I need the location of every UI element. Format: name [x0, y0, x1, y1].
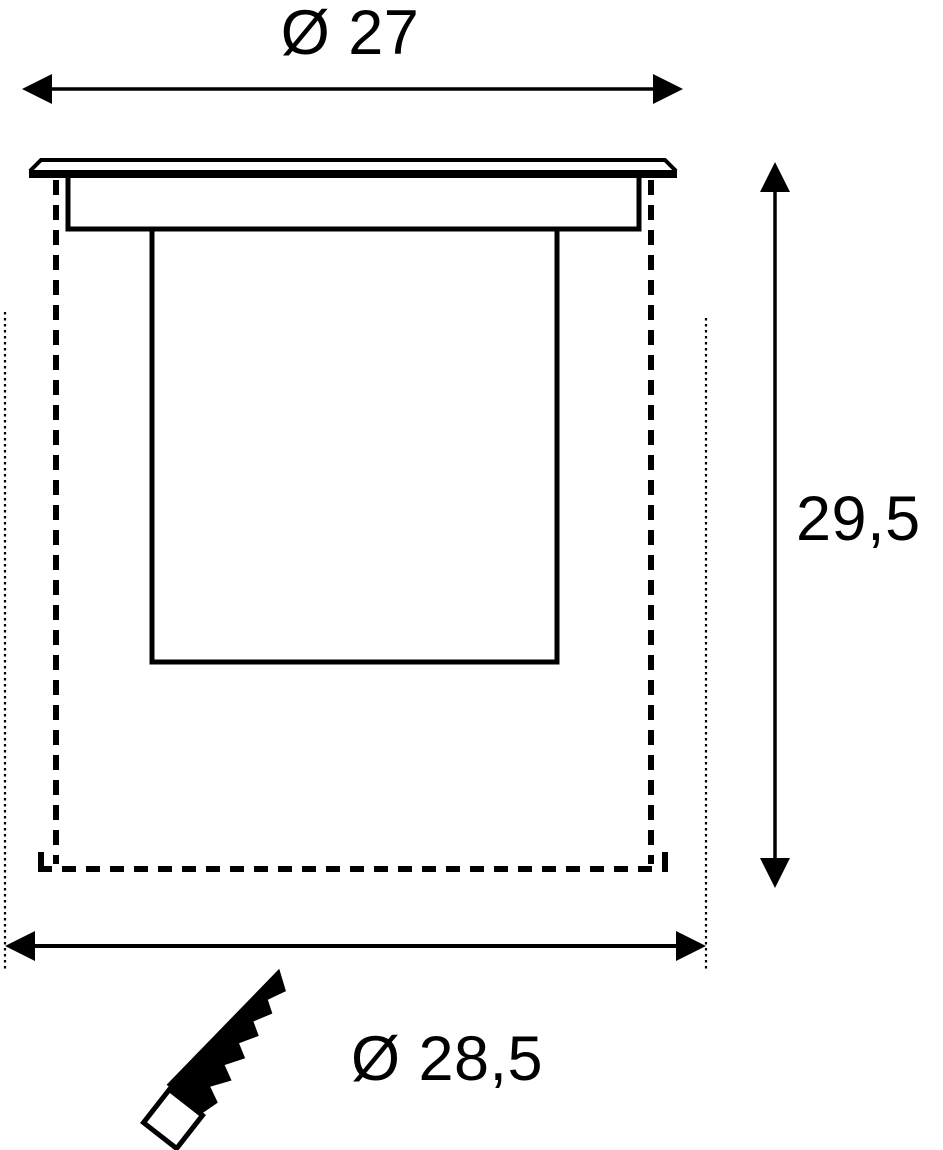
arrow-left-icon — [22, 74, 52, 104]
technical-drawing — [0, 0, 943, 1150]
flange-outline — [30, 160, 676, 171]
arrow-right-icon — [653, 74, 683, 104]
cable-sawtooth — [168, 960, 304, 1115]
height-label: 29,5 — [796, 488, 921, 551]
arrow-up-icon — [760, 162, 790, 192]
bottom-dimension — [5, 931, 706, 961]
dimension-drawing-page: Ø 27 29,5 Ø 28,5 — [0, 0, 943, 1150]
top-diameter-label: Ø 27 — [30, 2, 670, 65]
flange — [29, 160, 677, 174]
housing — [152, 229, 557, 662]
arrow-right-icon — [676, 931, 706, 961]
bottom-diameter-label: Ø 28,5 — [330, 1028, 564, 1091]
arrow-down-icon — [760, 858, 790, 888]
top-dimension — [22, 74, 683, 104]
cable-plug-icon — [140, 960, 304, 1150]
arrow-left-icon — [5, 931, 35, 961]
height-dimension — [760, 162, 790, 888]
collar — [68, 178, 639, 229]
